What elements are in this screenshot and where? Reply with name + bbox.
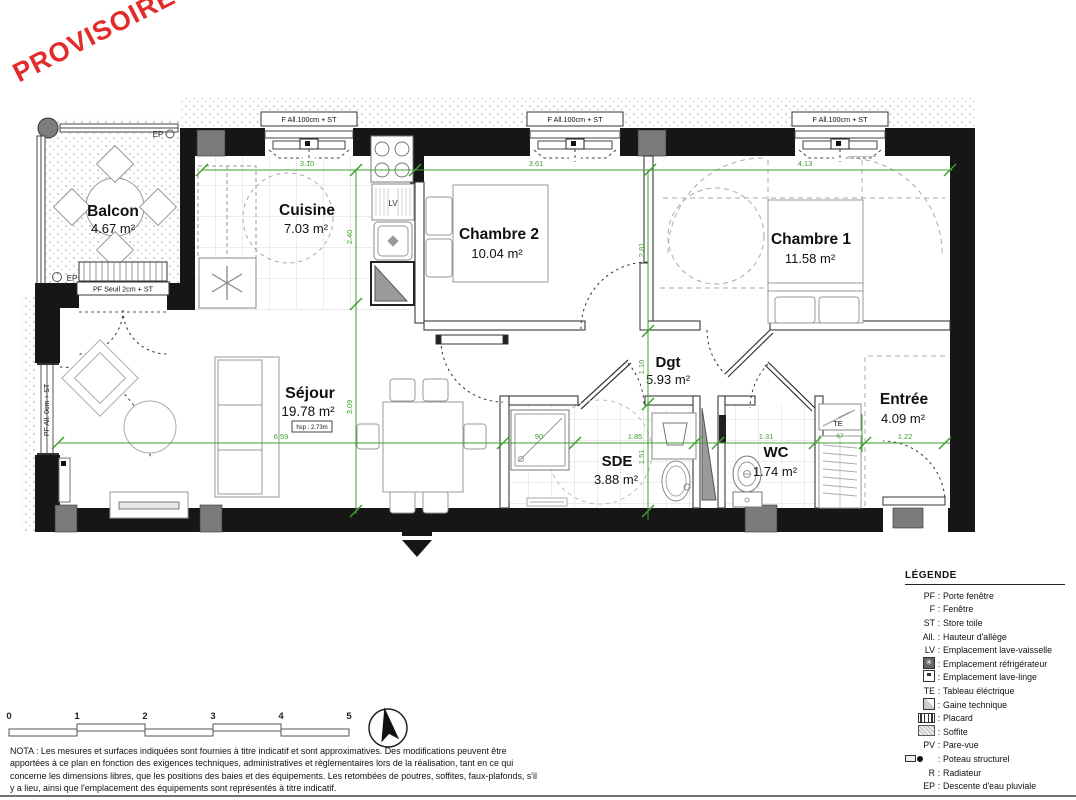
legend-item: : Emplacement lave-linge [905,671,1065,685]
room-name: Séjour [285,385,335,402]
legend-item: : Soffite [905,725,1065,739]
technical-duct-icon [923,698,935,710]
svg-text:1.85: 1.85 [628,432,643,441]
room-area: 3.88 m² [594,472,639,487]
room-name: Cuisine [279,202,335,219]
tv-stand [110,492,188,518]
room-area: 1.74 m² [753,464,798,479]
svg-text:3: 3 [210,711,215,722]
legend-item: TE : Tableau éléctrique [905,684,1065,698]
legend-item: R : Radiateur [905,766,1065,780]
svg-text:3.09: 3.09 [345,400,354,415]
room-area: 4.67 m² [91,221,136,236]
north-arrow-icon [369,706,407,747]
legend: LÉGENDE PF : Porte fenêtre F : Fenêtre S… [905,570,1065,793]
svg-text:6.59: 6.59 [274,432,289,441]
dining-set [357,379,486,513]
floor-plan-sheet: PROVISOIRE [0,0,1076,800]
structural-column-icon [905,755,935,762]
svg-text:4.13: 4.13 [798,159,813,168]
svg-text:3.61: 3.61 [529,159,544,168]
room-name: Dgt [656,354,681,371]
sejour: Séjour 19.78 m² hsp : 2.73m [62,340,486,518]
entry-closet [819,436,861,508]
room-name: Chambre 1 [771,231,851,248]
svg-text:1: 1 [74,711,80,722]
room-area: 10.04 m² [471,246,523,261]
room-area: 11.58 m² [785,251,836,266]
svg-text:3.10: 3.10 [300,159,315,168]
kitchen-duct-icon [371,262,414,305]
svg-text:5: 5 [346,711,352,722]
soffit-icon [918,725,935,736]
room-area: 19.78 m² [281,404,335,419]
ep-tag: EP [153,130,164,139]
washbasin [652,413,696,459]
dgt: Dgt 5.93 m² [646,354,691,387]
svg-text:2: 2 [142,711,147,722]
legend-item: All. : Hauteur d'allège [905,630,1065,644]
window-label: PF All. 0cm + ST [44,383,51,436]
washing-machine-spot [662,461,690,501]
window-label: PF Seuil 2cm + ST [93,285,154,294]
window-label: F All.100cm + ST [282,115,338,124]
window-cuisine: F All.100cm + ST [261,112,357,162]
legend-item: : Poteau structurel [905,752,1065,766]
svg-text:90: 90 [535,432,543,441]
entree: TE Entrée 4.09 m² [819,356,947,508]
legend-item: F : Fenêtre [905,603,1065,617]
window-label: F All.100cm + ST [813,115,869,124]
refrigerator-icon: ✳ [923,657,935,669]
room-area: 4.09 m² [881,411,926,426]
lv-tag: LV [388,199,398,208]
room-name: SDE [602,453,633,470]
room-name: Chambre 2 [459,226,539,243]
washing-machine-icon [923,670,935,682]
svg-text:0: 0 [6,711,11,722]
nota-disclaimer: NOTA : Les mesures et surfaces indiquées… [10,745,540,794]
room-area: 5.93 m² [646,372,691,387]
sofa [215,357,279,497]
legend-title: LÉGENDE [905,570,1065,585]
window-chambre2: F All.100cm + ST [527,112,623,162]
scale-bar: 0 1 2 3 4 5 [6,711,352,736]
ceiling-height: hsp : 2.73m [296,425,327,431]
dishwasher: LV [372,184,414,220]
legend-item: LV : Emplacement lave-vaisselle [905,643,1065,657]
legend-item: PV : Pare-vue [905,739,1065,753]
svg-text:1.10: 1.10 [637,360,646,375]
window-chambre1: F All.100cm + ST [792,112,888,162]
room-name: WC [764,444,789,461]
chambre2: Chambre 2 10.04 m² [426,185,548,282]
balcony-door-window: PF Seuil 2cm + ST [77,262,169,295]
cooktop [371,136,413,182]
legend-item: : Gaine technique [905,698,1065,712]
legend-item: EP : Descente d'eau pluviale [905,779,1065,793]
chambre1: Chambre 1 11.58 m² [660,158,945,323]
legend-item: ST : Store toile [905,616,1065,630]
room-area: 7.03 m² [284,221,329,236]
ep-tag: EP [67,274,78,283]
svg-text:2.40: 2.40 [345,230,354,245]
svg-text:4: 4 [278,711,284,722]
window-label: F All.100cm + ST [548,115,604,124]
legend-item: ✳ : Emplacement réfrigérateur [905,657,1065,671]
svg-text:67: 67 [836,433,844,440]
legend-item: PF : Porte fenêtre [905,589,1065,603]
svg-text:1.31: 1.31 [759,432,774,441]
room-name: Entrée [880,391,929,408]
room-name: Balcon [87,203,139,220]
closet-icon [918,713,935,723]
svg-text:2.81: 2.81 [637,243,646,258]
svg-text:1.51: 1.51 [637,450,646,465]
rainwater-pipe-icon [38,118,58,138]
section-marker [402,508,432,557]
svg-text:1.22: 1.22 [898,432,913,441]
kitchen-sink [374,222,412,260]
refrigerator-icon [199,258,256,308]
electrical-panel: TE [819,404,861,430]
legend-item: : Placard [905,711,1065,725]
te-tag: TE [833,419,843,428]
